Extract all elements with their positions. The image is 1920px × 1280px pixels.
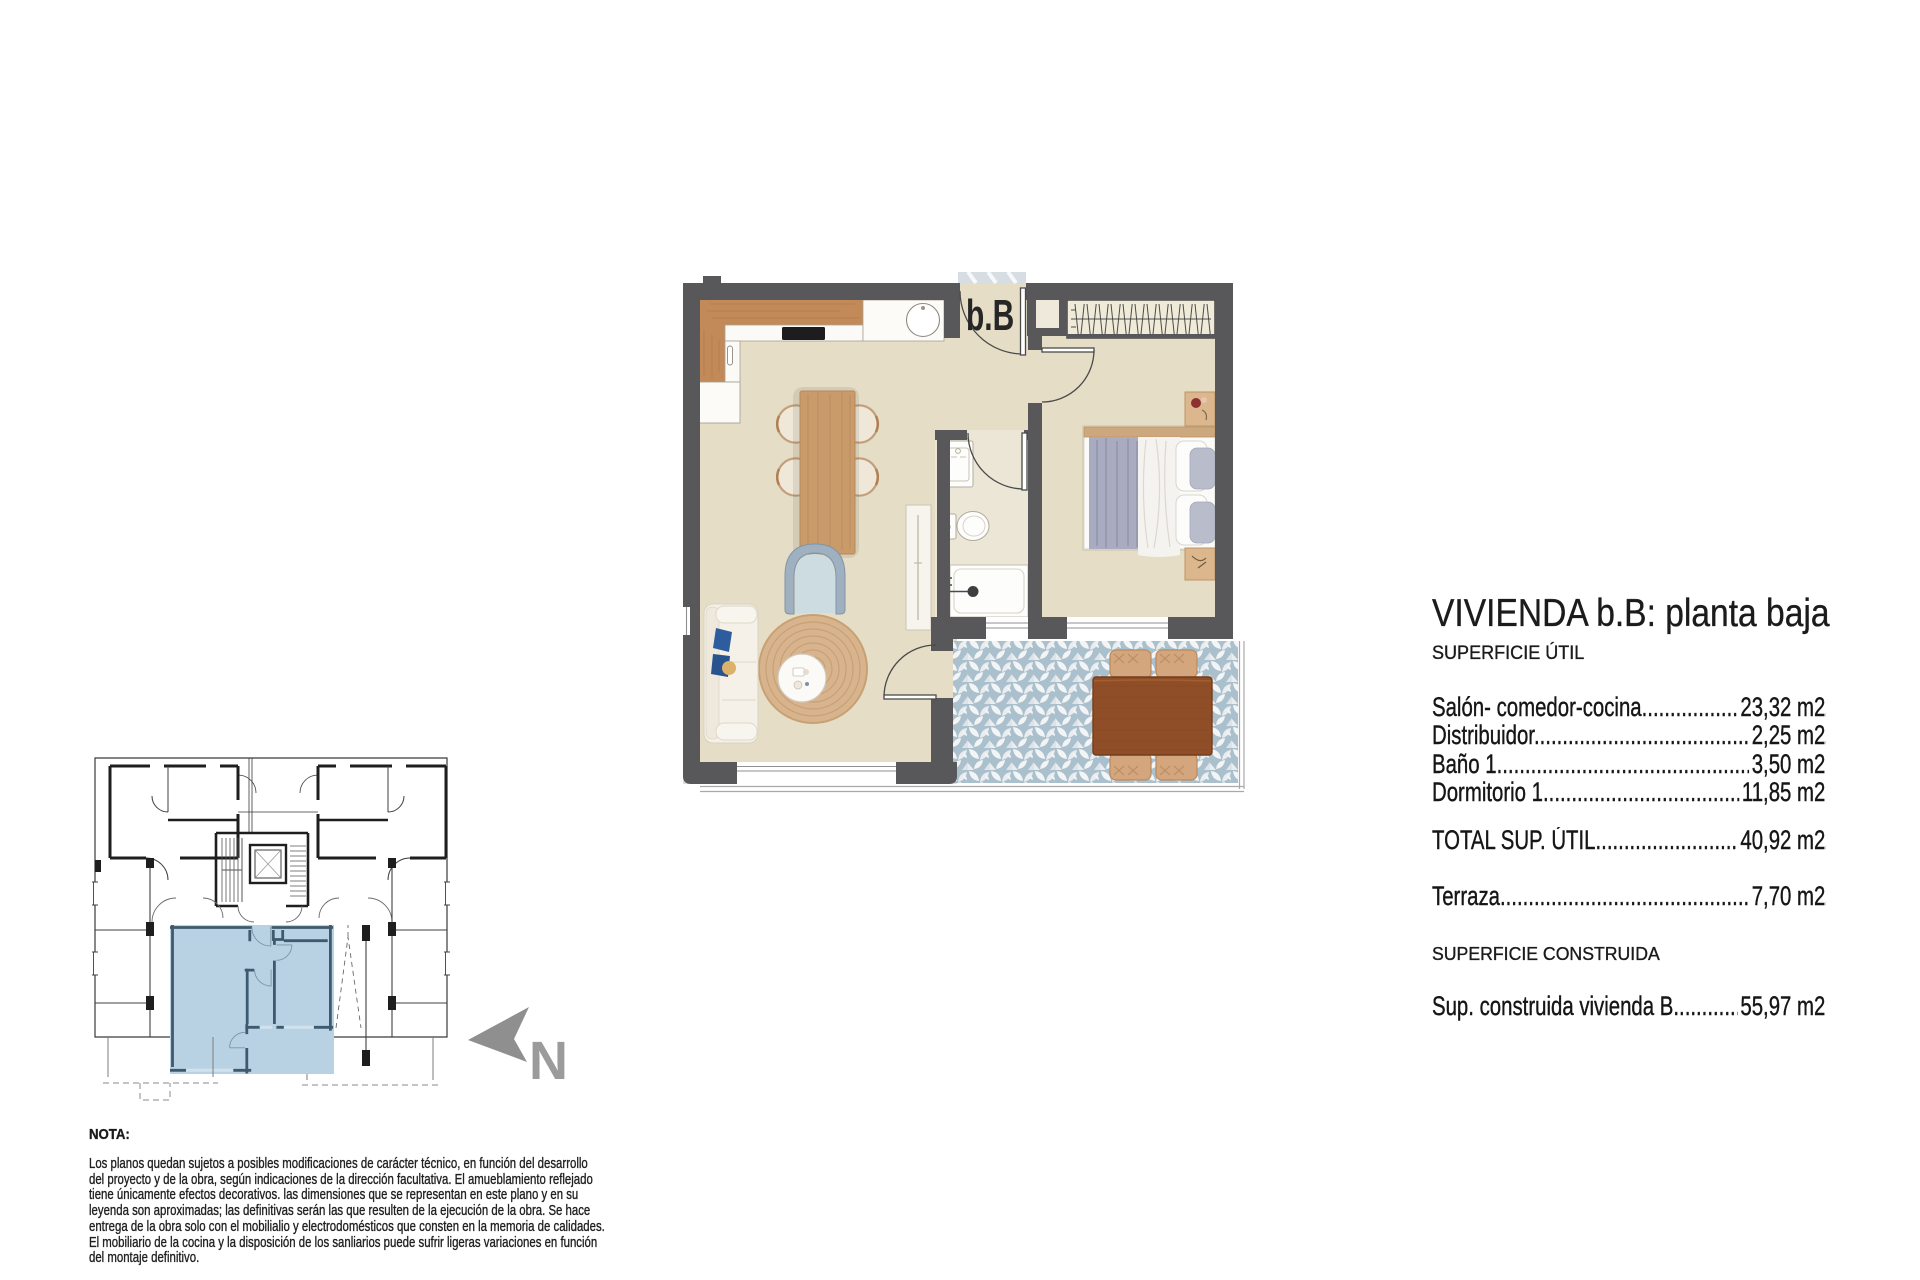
svg-text:b.B: b.B — [966, 290, 1014, 339]
svg-text:N: N — [529, 1031, 568, 1091]
